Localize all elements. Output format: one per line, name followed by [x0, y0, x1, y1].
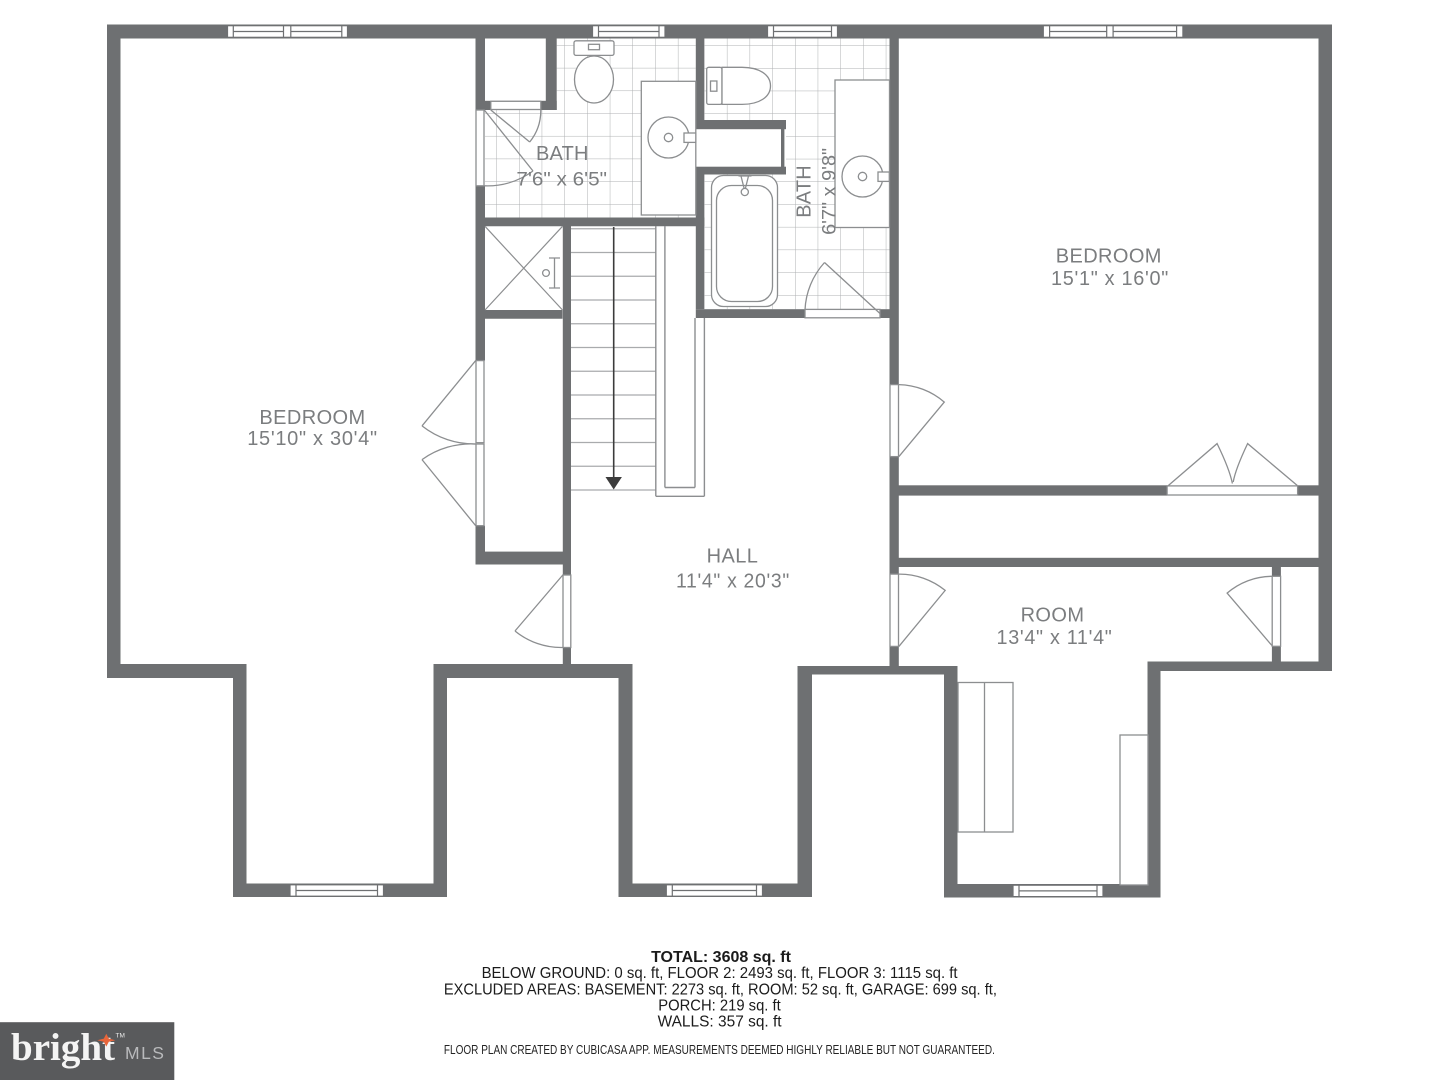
svg-text:TOTAL: 3608 sq. ft: TOTAL: 3608 sq. ft: [651, 949, 792, 966]
svg-text:EXCLUDED AREAS: BASEMENT: 2273: EXCLUDED AREAS: BASEMENT: 2273 sq. ft, R…: [444, 981, 997, 998]
svg-text:13'4" x 11'4": 13'4" x 11'4": [997, 627, 1113, 649]
svg-text:BATH: BATH: [794, 165, 816, 218]
svg-text:TM: TM: [116, 1033, 125, 1040]
svg-text:PORCH: 219 sq. ft: PORCH: 219 sq. ft: [658, 998, 781, 1015]
svg-text:BEDROOM: BEDROOM: [1056, 246, 1162, 268]
svg-text:7'6" x 6'5": 7'6" x 6'5": [516, 169, 607, 191]
svg-text:11'4" x 20'3": 11'4" x 20'3": [676, 571, 790, 593]
svg-text:BEDROOM: BEDROOM: [259, 407, 365, 429]
svg-text:6'7" x 9'8": 6'7" x 9'8": [819, 148, 841, 235]
svg-text:BELOW GROUND: 0 sq. ft, FLOOR: BELOW GROUND: 0 sq. ft, FLOOR 2: 2493 sq…: [482, 965, 959, 982]
svg-text:15'1" x 16'0": 15'1" x 16'0": [1051, 268, 1169, 290]
svg-text:ROOM: ROOM: [1021, 605, 1085, 627]
svg-text:MLS: MLS: [125, 1043, 165, 1063]
svg-text:FLOOR PLAN CREATED BY CUBICASA: FLOOR PLAN CREATED BY CUBICASA APP. MEAS…: [444, 1042, 995, 1057]
svg-text:BATH: BATH: [536, 143, 589, 165]
svg-text:bright: bright: [11, 1026, 115, 1069]
svg-text:15'10" x 30'4": 15'10" x 30'4": [247, 428, 378, 450]
svg-text:HALL: HALL: [707, 546, 759, 568]
svg-text:WALLS: 357 sq. ft: WALLS: 357 sq. ft: [658, 1014, 783, 1031]
